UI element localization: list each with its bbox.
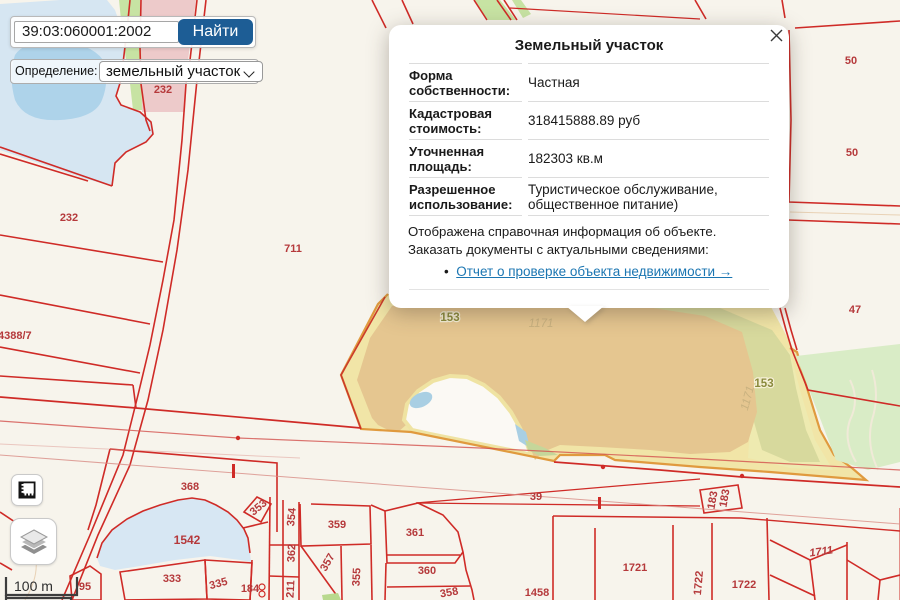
- svg-text:232: 232: [154, 84, 172, 96]
- svg-text:153: 153: [754, 378, 773, 390]
- svg-text:50: 50: [845, 55, 857, 67]
- svg-text:333: 333: [163, 573, 181, 585]
- svg-text:359: 359: [328, 519, 346, 531]
- svg-text:362: 362: [286, 544, 299, 563]
- svg-text:95: 95: [79, 581, 91, 593]
- svg-text:1542: 1542: [174, 533, 201, 547]
- svg-text:39: 39: [530, 491, 542, 503]
- svg-text:1458: 1458: [525, 587, 549, 599]
- svg-text:1722: 1722: [692, 570, 706, 595]
- svg-text:211: 211: [285, 580, 298, 598]
- svg-text:368: 368: [181, 481, 199, 493]
- svg-text:361: 361: [406, 527, 424, 539]
- svg-text:47: 47: [849, 304, 861, 316]
- svg-text:50: 50: [846, 147, 858, 159]
- svg-text:1721: 1721: [623, 562, 647, 574]
- svg-text:360: 360: [418, 565, 436, 577]
- svg-text:355: 355: [351, 568, 364, 587]
- svg-text:358: 358: [439, 585, 459, 600]
- svg-text:4388/7: 4388/7: [0, 330, 32, 342]
- svg-text:354: 354: [285, 507, 299, 527]
- svg-text:1171: 1171: [529, 318, 554, 330]
- svg-text:153: 153: [440, 312, 459, 324]
- svg-text:184: 184: [241, 583, 260, 595]
- svg-text:711: 711: [284, 243, 302, 255]
- svg-text:1722: 1722: [732, 579, 756, 591]
- svg-text:232: 232: [60, 212, 78, 224]
